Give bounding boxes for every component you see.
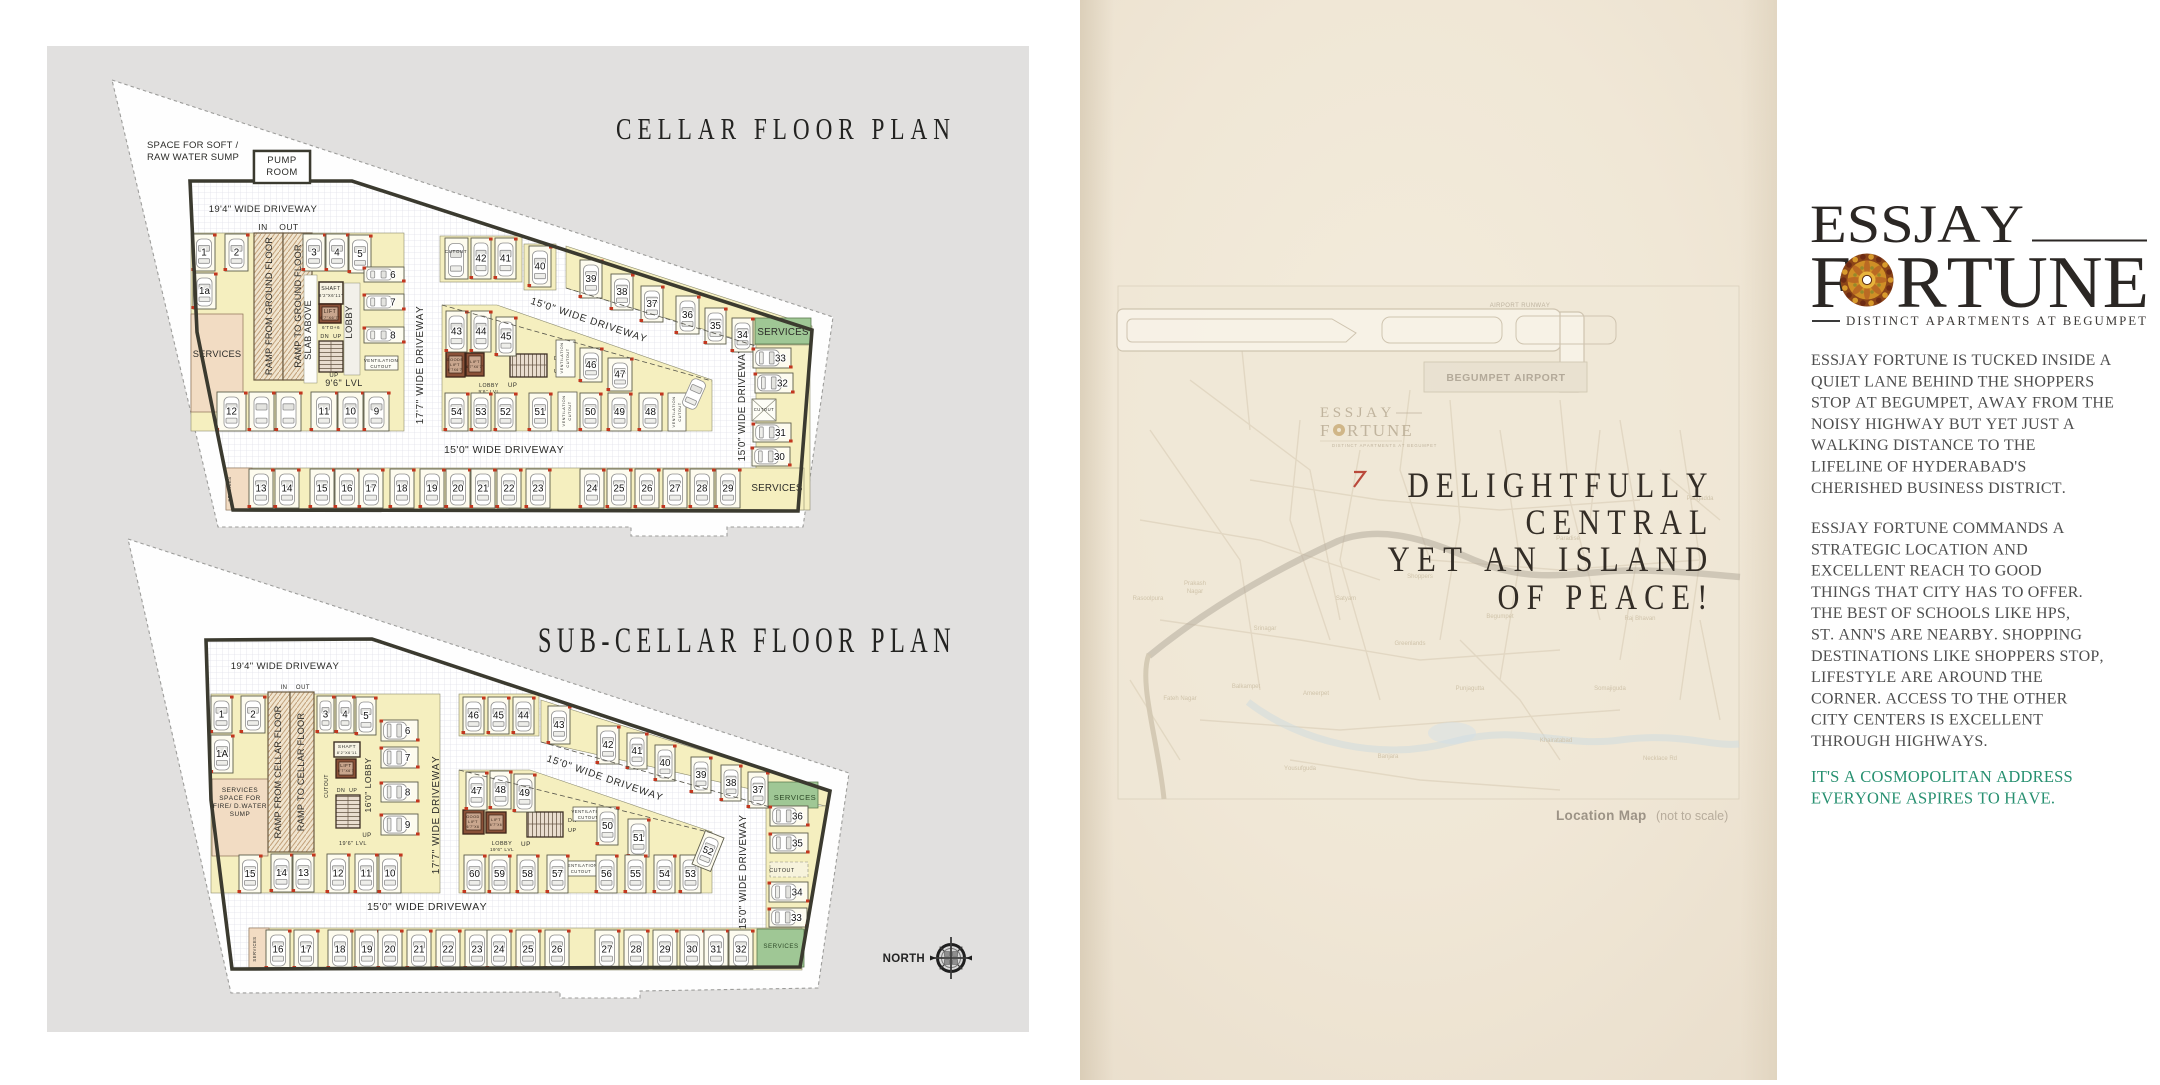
svg-text:9: 9 [374, 407, 379, 418]
svg-text:EVERYONE ASPIRES TO HAVE.: EVERYONE ASPIRES TO HAVE. [1811, 789, 2055, 808]
svg-text:39: 39 [696, 770, 707, 781]
svg-text:46: 46 [468, 711, 479, 722]
svg-text:20: 20 [385, 945, 396, 956]
svg-text:FIRE/ D.WATER: FIRE/ D.WATER [213, 803, 267, 810]
svg-text:6'7"X6'7": 6'7"X6'7" [320, 316, 340, 320]
svg-text:49: 49 [519, 788, 530, 799]
svg-text:Necklace Rd: Necklace Rd [1643, 756, 1677, 762]
svg-text:4: 4 [334, 248, 340, 259]
svg-text:40: 40 [660, 758, 671, 769]
svg-text:ESSJAY: ESSJAY [1320, 405, 1395, 421]
svg-text:11: 11 [361, 869, 372, 880]
svg-text:15'0" WIDE DRIVEWAY: 15'0" WIDE DRIVEWAY [444, 444, 564, 456]
svg-text:CORNER. ACCESS TO THE OTHER: CORNER. ACCESS TO THE OTHER [1811, 690, 2068, 707]
svg-text:CUTOUT: CUTOUT [578, 815, 598, 820]
svg-text:11: 11 [319, 407, 330, 418]
svg-text:SERVICES: SERVICES [757, 327, 808, 338]
svg-text:IN: IN [281, 685, 288, 691]
svg-text:43: 43 [451, 327, 462, 338]
svg-text:44: 44 [476, 327, 487, 338]
svg-text:27: 27 [602, 945, 613, 956]
svg-text:23: 23 [533, 484, 544, 495]
svg-text:LIFT: LIFT [450, 363, 460, 367]
svg-text:17'7" WIDE DRIVEWAY: 17'7" WIDE DRIVEWAY [431, 756, 442, 875]
svg-text:RAMP TO CELLAR FLOOR: RAMP TO CELLAR FLOOR [296, 713, 306, 832]
svg-text:2: 2 [250, 710, 255, 721]
svg-text:29: 29 [723, 484, 734, 495]
svg-text:THROUGH HIGHWAYS.: THROUGH HIGHWAYS. [1811, 733, 1988, 750]
svg-text:RAMP TO GROUND FLOOR: RAMP TO GROUND FLOOR [293, 244, 303, 368]
svg-text:37: 37 [753, 785, 764, 796]
svg-text:12: 12 [226, 407, 237, 418]
svg-text:15'0" WIDE DRIVEWAY: 15'0" WIDE DRIVEWAY [367, 901, 487, 913]
svg-text:22: 22 [504, 484, 515, 495]
svg-text:GOODS: GOODS [447, 358, 464, 362]
svg-text:48: 48 [645, 407, 656, 418]
svg-text:LIFT: LIFT [491, 818, 501, 822]
svg-text:SPACE FOR: SPACE FOR [219, 795, 260, 802]
svg-text:41: 41 [632, 746, 643, 757]
svg-text:5: 5 [357, 249, 363, 260]
svg-text:Ameerpet: Ameerpet [1303, 691, 1329, 697]
svg-text:59: 59 [494, 869, 505, 880]
svg-text:NOISY HIGHWAY BUT YET JUST A: NOISY HIGHWAY BUT YET JUST A [1811, 416, 2075, 433]
svg-text:DN UP: DN UP [320, 334, 341, 340]
svg-text:UP: UP [329, 373, 338, 379]
svg-text:42: 42 [603, 740, 614, 751]
svg-text:SERVICES: SERVICES [252, 936, 257, 961]
svg-text:42: 42 [476, 254, 487, 265]
svg-text:16: 16 [342, 484, 353, 495]
svg-text:LOBBY: LOBBY [344, 305, 355, 339]
svg-text:Rasoolpura: Rasoolpura [1133, 596, 1164, 602]
svg-text:49: 49 [614, 407, 625, 418]
svg-text:19: 19 [362, 945, 373, 956]
svg-text:DISTINCT APARTMENTS AT BEGUMPE: DISTINCT APARTMENTS AT BEGUMPET [1846, 313, 2148, 328]
svg-text:AIRPORT RUNWAY: AIRPORT RUNWAY [1490, 303, 1551, 309]
svg-text:DISTINCT APARTMENTS AT BEGUMPE: DISTINCT APARTMENTS AT BEGUMPET [1332, 443, 1437, 448]
svg-text:15'0" WIDE DRIVEWAY: 15'0" WIDE DRIVEWAY [738, 815, 749, 930]
svg-text:SUMP: SUMP [230, 811, 250, 818]
svg-text:8: 8 [405, 788, 411, 799]
svg-text:52: 52 [500, 407, 511, 418]
svg-text:8: 8 [390, 331, 396, 342]
svg-text:15: 15 [317, 484, 328, 495]
svg-text:32: 32 [777, 379, 788, 390]
svg-text:YET AN ISLAND: YET AN ISLAND [1388, 539, 1715, 579]
svg-text:Location Map: Location Map [1556, 808, 1647, 823]
svg-text:6'7"X6'7": 6'7"X6'7" [466, 365, 483, 369]
svg-text:Nagar: Nagar [1187, 589, 1203, 595]
svg-text:16'0" LOBBY: 16'0" LOBBY [363, 757, 373, 812]
svg-text:50: 50 [602, 821, 613, 832]
svg-text:STOP AT BEGUMPET, AWAY FROM TH: STOP AT BEGUMPET, AWAY FROM THE [1811, 395, 2114, 412]
svg-text:SPACE FOR SOFT /: SPACE FOR SOFT / [147, 140, 239, 151]
svg-text:ST. ANN'S ARE NEARBY. SHOPPING: ST. ANN'S ARE NEARBY. SHOPPING [1811, 627, 2082, 644]
svg-text:Prakash: Prakash [1184, 581, 1206, 587]
svg-text:38: 38 [617, 287, 628, 298]
svg-text:15: 15 [245, 869, 256, 880]
svg-text:Srinagar: Srinagar [1254, 626, 1277, 632]
svg-text:24: 24 [587, 484, 598, 495]
svg-text:18: 18 [335, 945, 346, 956]
svg-text:9'6" LVL: 9'6" LVL [325, 378, 362, 388]
svg-text:1: 1 [201, 248, 206, 259]
svg-text:Balkampet: Balkampet [1232, 684, 1261, 690]
svg-text:19'6" LVL: 19'6" LVL [490, 847, 514, 852]
svg-text:LIFT: LIFT [470, 360, 480, 364]
svg-text:9: 9 [405, 820, 410, 831]
svg-text:37: 37 [647, 299, 658, 310]
svg-text:F: F [1320, 421, 1330, 440]
svg-text:CUTOUT: CUTOUT [567, 401, 572, 420]
svg-text:13: 13 [298, 868, 309, 879]
svg-text:SUB-CELLAR FLOOR PLAN: SUB-CELLAR FLOOR PLAN [538, 620, 956, 660]
svg-text:10: 10 [385, 869, 396, 880]
svg-text:26: 26 [552, 945, 563, 956]
svg-text:28: 28 [697, 484, 708, 495]
svg-text:DELIGHTFULLY: DELIGHTFULLY [1408, 465, 1715, 505]
svg-text:3: 3 [311, 248, 317, 259]
svg-text:54: 54 [451, 407, 462, 418]
svg-text:35: 35 [710, 321, 721, 332]
svg-text:Greenlands: Greenlands [1394, 641, 1425, 647]
svg-text:33: 33 [791, 913, 802, 924]
svg-text:39: 39 [586, 274, 597, 285]
svg-text:19'4" WIDE DRIVEWAY: 19'4" WIDE DRIVEWAY [209, 204, 318, 215]
svg-text:NORTH: NORTH [883, 953, 925, 965]
svg-text:6'7"X6: 6'7"X6 [467, 825, 480, 829]
svg-text:5: 5 [363, 711, 369, 722]
svg-text:CHERISHED BUSINESS DISTRICT.: CHERISHED BUSINESS DISTRICT. [1811, 480, 2066, 497]
svg-text:1a: 1a [199, 286, 210, 297]
svg-text:2: 2 [234, 248, 239, 259]
svg-text:Banjara: Banjara [1378, 754, 1399, 760]
svg-text:Somajiguda: Somajiguda [1594, 686, 1626, 692]
svg-text:51: 51 [633, 833, 644, 844]
svg-text:6'7"X6: 6'7"X6 [490, 823, 502, 827]
svg-text:WALKING DISTANCE TO THE: WALKING DISTANCE TO THE [1811, 437, 2036, 454]
svg-text:6: 6 [390, 270, 396, 281]
svg-text:DN UP: DN UP [337, 788, 358, 794]
svg-text:50: 50 [585, 407, 596, 418]
svg-text:RAMP FROM CELLAR FLOOR: RAMP FROM CELLAR FLOOR [273, 705, 283, 838]
svg-text:29: 29 [660, 945, 671, 956]
svg-text:SERVICES: SERVICES [222, 787, 258, 794]
svg-text:17'7" WIDE DRIVEWAY: 17'7" WIDE DRIVEWAY [415, 306, 426, 425]
svg-text:27: 27 [670, 484, 681, 495]
svg-text:45: 45 [493, 711, 504, 722]
svg-text:30: 30 [774, 452, 785, 463]
svg-text:34: 34 [737, 330, 748, 341]
svg-text:13: 13 [256, 484, 267, 495]
svg-text:LIFT: LIFT [340, 763, 351, 768]
svg-text:12: 12 [333, 869, 344, 880]
svg-text:7: 7 [405, 753, 410, 764]
svg-text:7: 7 [390, 298, 395, 309]
svg-text:OF PEACE!: OF PEACE! [1498, 577, 1715, 617]
svg-text:46: 46 [586, 360, 597, 371]
svg-text:30: 30 [687, 945, 698, 956]
svg-text:GOOD: GOOD [466, 815, 480, 819]
svg-text:CELLAR FLOOR PLAN: CELLAR FLOOR PLAN [616, 111, 956, 146]
svg-text:21: 21 [414, 945, 425, 956]
svg-text:THINGS THAT CITY HAS TO OFFER.: THINGS THAT CITY HAS TO OFFER. [1811, 584, 2083, 601]
svg-text:45: 45 [501, 332, 512, 343]
svg-text:THE BEST OF SCHOOLS LIKE HPS,: THE BEST OF SCHOOLS LIKE HPS, [1811, 605, 2070, 622]
svg-text:RAMP FROM GROUND FLOOR: RAMP FROM GROUND FLOOR [264, 237, 274, 375]
svg-text:47: 47 [471, 786, 482, 797]
svg-text:17: 17 [301, 945, 312, 956]
svg-text:53: 53 [476, 407, 487, 418]
svg-text:LIFESTYLE ARE AROUND THE: LIFESTYLE ARE AROUND THE [1811, 669, 2043, 686]
svg-text:8'2"X6'11: 8'2"X6'11 [337, 751, 357, 755]
svg-text:RAW WATER SUMP: RAW WATER SUMP [147, 152, 239, 163]
svg-text:33: 33 [775, 354, 786, 365]
svg-text:31: 31 [711, 945, 722, 956]
svg-text:(not to scale): (not to scale) [1656, 809, 1728, 823]
svg-text:23: 23 [472, 945, 483, 956]
svg-text:OUT: OUT [296, 685, 310, 691]
svg-text:Khairatabad: Khairatabad [1540, 738, 1572, 744]
svg-text:17: 17 [366, 484, 377, 495]
svg-text:SERVICES: SERVICES [751, 483, 802, 494]
svg-text:SHAFT: SHAFT [338, 744, 356, 750]
svg-text:41: 41 [500, 254, 511, 265]
svg-text:54: 54 [659, 869, 670, 880]
svg-text:UP: UP [568, 828, 577, 834]
svg-text:VENTILATION: VENTILATION [364, 358, 398, 363]
svg-text:35: 35 [792, 839, 803, 850]
svg-text:VENTILATION: VENTILATION [671, 396, 676, 427]
svg-text:CUTOUT: CUTOUT [370, 364, 391, 369]
svg-text:36: 36 [792, 812, 803, 823]
svg-text:47: 47 [615, 370, 626, 381]
svg-text:25: 25 [614, 484, 625, 495]
svg-text:26: 26 [642, 484, 653, 495]
svg-text:40: 40 [535, 262, 546, 273]
svg-text:6'TO+6: 6'TO+6 [322, 325, 340, 330]
svg-text:51: 51 [535, 407, 546, 418]
svg-text:48: 48 [495, 785, 506, 796]
svg-text:32: 32 [736, 945, 747, 956]
svg-text:SERVICES: SERVICES [774, 793, 816, 802]
svg-text:LIFT: LIFT [468, 820, 478, 824]
svg-text:SERVICES: SERVICES [763, 943, 798, 950]
svg-text:4: 4 [342, 710, 348, 721]
svg-text:CUTOUT: CUTOUT [571, 869, 591, 874]
svg-text:CUTOUT: CUTOUT [565, 348, 570, 367]
svg-text:LIFT: LIFT [324, 309, 336, 315]
svg-text:BEGUMPET AIRPORT: BEGUMPET AIRPORT [1446, 372, 1565, 384]
svg-text:Yousufguda: Yousufguda [1284, 766, 1317, 772]
svg-text:34: 34 [792, 888, 803, 899]
svg-text:15'0" WIDE DRIVEWAY: 15'0" WIDE DRIVEWAY [737, 347, 748, 462]
svg-text:CUTOUT: CUTOUT [445, 249, 467, 254]
svg-text:OUT: OUT [279, 222, 298, 232]
svg-text:SLAB ABOVE: SLAB ABOVE [303, 300, 313, 360]
svg-text:6'7X6'7: 6'7X6'7 [448, 368, 463, 372]
svg-text:CUTOUT: CUTOUT [677, 402, 682, 421]
svg-text:QUIET LANE BEHIND THE SHOPPERS: QUIET LANE BEHIND THE SHOPPERS [1811, 373, 2094, 390]
svg-text:56: 56 [601, 869, 612, 880]
svg-text:LIFELINE OF HYDERABAD'S: LIFELINE OF HYDERABAD'S [1811, 459, 2026, 476]
svg-text:60: 60 [469, 869, 480, 880]
svg-text:20: 20 [453, 484, 464, 495]
svg-text:38: 38 [726, 778, 737, 789]
svg-text:VENTILATION: VENTILATION [559, 342, 564, 373]
svg-text:Fateh Nagar: Fateh Nagar [1163, 696, 1196, 702]
svg-text:43: 43 [554, 720, 565, 731]
svg-text:31: 31 [775, 428, 786, 439]
svg-text:8'2"X6'11": 8'2"X6'11" [319, 293, 343, 298]
svg-text:DESTINATIONS LIKE SHOPPERS STO: DESTINATIONS LIKE SHOPPERS STOP, [1811, 648, 2104, 665]
svg-text:UP: UP [362, 833, 371, 839]
svg-text:28: 28 [631, 945, 642, 956]
svg-text:19'4" WIDE DRIVEWAY: 19'4" WIDE DRIVEWAY [231, 661, 340, 672]
svg-text:ROOM: ROOM [266, 167, 298, 178]
svg-text:IT'S A COSMOPOLITAN ADDRESS: IT'S A COSMOPOLITAN ADDRESS [1811, 767, 2073, 786]
svg-text:57: 57 [552, 869, 563, 880]
svg-text:VENTILATION: VENTILATION [561, 395, 566, 426]
svg-text:RTUNE: RTUNE [1347, 421, 1414, 440]
svg-text:UP: UP [508, 383, 517, 389]
svg-text:Punjagutta: Punjagutta [1456, 686, 1485, 692]
svg-text:UP: UP [521, 841, 531, 848]
svg-text:3: 3 [323, 710, 329, 721]
svg-text:ESSJAY FORTUNE IS TUCKED INSID: ESSJAY FORTUNE IS TUCKED INSIDE A [1811, 352, 2112, 369]
svg-text:SHAFT: SHAFT [321, 286, 341, 292]
svg-text:CUTOUT: CUTOUT [769, 868, 795, 874]
svg-text:14: 14 [276, 868, 287, 879]
svg-text:CUTOUT: CUTOUT [324, 774, 330, 798]
svg-text:1A: 1A [216, 749, 228, 760]
svg-text:1: 1 [219, 710, 224, 721]
svg-text:18: 18 [397, 484, 408, 495]
svg-text:19: 19 [427, 484, 438, 495]
svg-text:16: 16 [273, 945, 284, 956]
svg-text:55: 55 [630, 869, 641, 880]
svg-text:44: 44 [518, 711, 529, 722]
svg-text:Satyam: Satyam [1336, 596, 1356, 602]
svg-text:36: 36 [682, 310, 693, 321]
svg-text:PUMP: PUMP [267, 155, 296, 166]
svg-text:CENTRAL: CENTRAL [1526, 502, 1715, 542]
svg-text:53: 53 [685, 869, 696, 880]
svg-text:24: 24 [494, 945, 505, 956]
svg-text:VENTILATION: VENTILATION [565, 863, 598, 868]
svg-text:58: 58 [522, 869, 533, 880]
svg-text:STRATEGIC LOCATION AND: STRATEGIC LOCATION AND [1811, 541, 2028, 558]
svg-text:19'6" LVL: 19'6" LVL [339, 841, 367, 847]
svg-text:EXCELLENT REACH TO GOOD: EXCELLENT REACH TO GOOD [1811, 563, 2042, 580]
svg-text:14: 14 [282, 484, 293, 495]
svg-text:6: 6 [405, 726, 411, 737]
svg-text:ESSJAY FORTUNE COMMANDS A: ESSJAY FORTUNE COMMANDS A [1811, 520, 2065, 537]
svg-text:CITY CENTERS IS EXCELLENT: CITY CENTERS IS EXCELLENT [1811, 712, 2043, 729]
svg-text:CUTOUT: CUTOUT [754, 407, 774, 412]
svg-text:RTUNE: RTUNE [1896, 242, 2149, 324]
svg-text:21: 21 [478, 484, 489, 495]
svg-text:6'7"X6'7: 6'7"X6'7 [338, 769, 354, 773]
svg-text:10: 10 [345, 407, 356, 418]
svg-text:IN: IN [258, 222, 268, 232]
svg-text:25: 25 [523, 945, 534, 956]
svg-text:22: 22 [443, 945, 454, 956]
